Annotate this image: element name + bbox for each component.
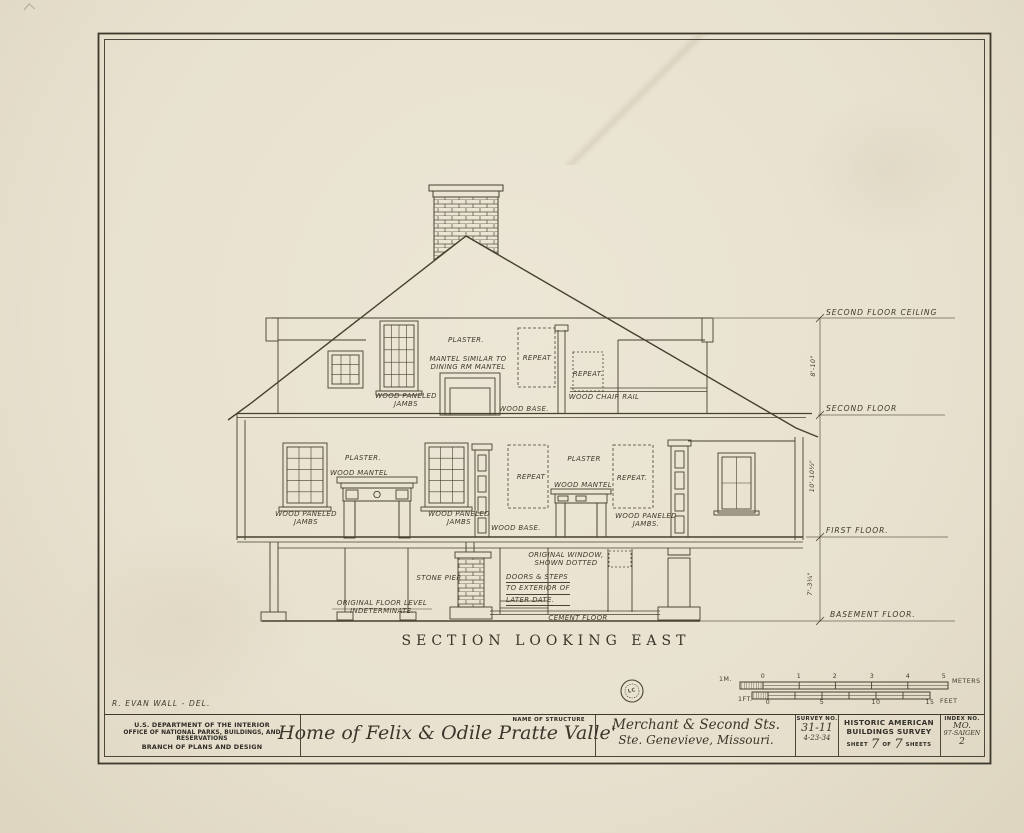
- label-attic-wood-base: WOOD BASE.: [499, 405, 549, 413]
- survey-number: 31-11: [796, 722, 837, 734]
- sheet-count: SHEET 7 OF 7 SHEETS: [844, 737, 934, 752]
- label-ff-repeat-left: REPEAT: [517, 473, 546, 481]
- label-ff-mantel-left: WOOD MANTEL: [330, 469, 388, 477]
- reference-lines: [700, 314, 955, 625]
- label-attic-mantel-note: MANTEL SIMILAR TO DINING RM MANTEL: [429, 355, 506, 372]
- meters-tick: 4: [906, 673, 911, 681]
- label-ff-jambs-right: WOOD PANELED JAMBS.: [615, 512, 677, 529]
- label-attic-jambs: WOOD PANELED JAMBS: [375, 392, 437, 409]
- label-second-floor: SECOND FLOOR: [826, 404, 897, 413]
- address-line: Ste. Genevieve, Missouri.: [612, 734, 780, 747]
- label-stone-pier: STONE PIER: [416, 574, 461, 582]
- label-line: JAMBS: [428, 518, 490, 526]
- label-line: WOOD PANELED: [275, 510, 337, 518]
- section-drawing-linework: [0, 0, 1024, 833]
- scale-bars: [740, 682, 948, 699]
- meters-tick: 3: [870, 673, 875, 681]
- delineator-credit: R. EVAN WALL - DEL.: [112, 699, 210, 708]
- sheet-border: [99, 34, 991, 764]
- dim-ceiling-height: 8'-10": [810, 355, 818, 376]
- agency-line: OFFICE OF NATIONAL PARKS, BUILDINGS, AND…: [104, 730, 300, 742]
- feet-scale-unit: FEET: [940, 698, 957, 706]
- sheets-word: SHEETS: [906, 742, 932, 748]
- agency-block: U.S. DEPARTMENT OF THE INTERIOR OFFICE O…: [104, 715, 300, 757]
- habs-drawing-sheet: PLASTER. MANTEL SIMILAR TO DINING RM MAN…: [0, 0, 1024, 833]
- sheet-total: 7: [894, 737, 902, 752]
- survey-number-block: SURVEY NO. 31-11 4-23-34: [796, 716, 837, 742]
- label-doors-steps: DOORS & STEPS TO EXTERIOR OF LATER DATE.: [506, 573, 570, 607]
- roof-and-floors: [228, 236, 818, 621]
- meters-scale-unit: METERS: [952, 678, 981, 686]
- agency-line: U.S. DEPARTMENT OF THE INTERIOR: [134, 721, 270, 729]
- label-line: INDETERMINATE.: [337, 607, 427, 615]
- structure-address: Merchant & Second Sts. Ste. Genevieve, M…: [612, 718, 780, 747]
- habs-line: HISTORIC AMERICAN: [844, 718, 934, 727]
- agency-line: BRANCH OF PLANS AND DESIGN: [142, 743, 263, 751]
- feet-tick: 5: [820, 699, 825, 707]
- drawing-title: SECTION LOOKING EAST: [402, 633, 691, 650]
- label-line: JAMBS.: [615, 520, 677, 528]
- dim-basement-storey: 7'-3¼": [807, 572, 815, 596]
- label-line: LATER DATE.: [506, 596, 570, 606]
- feet-tick: 0: [766, 699, 771, 707]
- label-line: WOOD PANELED: [615, 512, 677, 520]
- label-line: JAMBS: [275, 518, 337, 526]
- label-ff-plaster-center: PLASTER: [567, 455, 600, 463]
- meters-tick: 5: [942, 673, 947, 681]
- dim-first-storey: 10'-10½": [809, 460, 817, 492]
- label-ff-wood-base: WOOD BASE.: [491, 524, 541, 532]
- label-floor-level: ORIGINAL FLOOR LEVEL INDETERMINATE.: [337, 599, 427, 616]
- label-line: TO EXTERIOR OF: [506, 584, 570, 594]
- label-line: WOOD PANELED: [428, 510, 490, 518]
- feet-scale-prefix: 1FT.: [738, 696, 753, 704]
- index-line: 2: [944, 738, 981, 747]
- label-second-floor-ceiling: SECOND FLOOR CEILING: [826, 308, 937, 317]
- meters-tick: 0: [761, 673, 766, 681]
- label-line: DOORS & STEPS: [506, 573, 570, 583]
- label-line: ORIGINAL WINDOW,: [528, 551, 603, 559]
- label-ff-jambs-mid: WOOD PANELED JAMBS: [428, 510, 490, 527]
- feet-tick: 15: [925, 699, 934, 707]
- label-line: SHOWN DOTTED: [528, 559, 603, 567]
- habs-line: BUILDINGS SURVEY: [844, 727, 934, 736]
- label-cement-floor: CEMENT FLOOR: [548, 614, 607, 622]
- label-line: MANTEL SIMILAR TO: [429, 355, 506, 363]
- label-basement-floor: BASEMENT FLOOR.: [830, 610, 916, 619]
- structure-name: Home of Felix & Odile Pratte Valle': [278, 722, 616, 744]
- label-attic-chair-rail: WOOD CHAIR RAIL: [569, 393, 640, 401]
- label-attic-plaster: PLASTER.: [448, 336, 484, 344]
- meters-tick: 2: [833, 673, 838, 681]
- pencil-mark: [24, 4, 35, 10]
- of-word: OF: [882, 742, 891, 748]
- sheet-word: SHEET: [847, 742, 868, 748]
- label-ff-plaster-left: PLASTER.: [345, 454, 381, 462]
- label-attic-repeat-right: REPEAT.: [573, 370, 603, 378]
- index-number-block: INDEX NO. MO. 97-SAIGEN 2: [944, 716, 981, 747]
- label-ff-mantel-center: WOOD MANTEL: [554, 481, 612, 489]
- label-line: ORIGINAL FLOOR LEVEL: [337, 599, 427, 607]
- address-line: Merchant & Second Sts.: [612, 718, 780, 734]
- label-ff-repeat-right: REPEAT.: [617, 474, 647, 482]
- meters-tick: 1: [797, 673, 802, 681]
- chimney: [429, 185, 503, 260]
- habs-block: HISTORIC AMERICAN BUILDINGS SURVEY SHEET…: [844, 718, 934, 752]
- label-attic-repeat-left: REPEAT: [523, 354, 552, 362]
- feet-tick: 10: [871, 699, 880, 707]
- meters-scale-prefix: 1M.: [719, 676, 732, 684]
- label-line: JAMBS: [375, 400, 437, 408]
- label-original-window: ORIGINAL WINDOW, SHOWN DOTTED: [528, 551, 603, 568]
- label-line: WOOD PANELED: [375, 392, 437, 400]
- label-ff-jambs-left: WOOD PANELED JAMBS: [275, 510, 337, 527]
- survey-date: 4-23-34: [796, 734, 837, 742]
- sheet-number: 7: [871, 737, 879, 752]
- label-first-floor: FIRST FLOOR.: [826, 526, 889, 535]
- label-line: DINING RM MANTEL: [429, 363, 506, 371]
